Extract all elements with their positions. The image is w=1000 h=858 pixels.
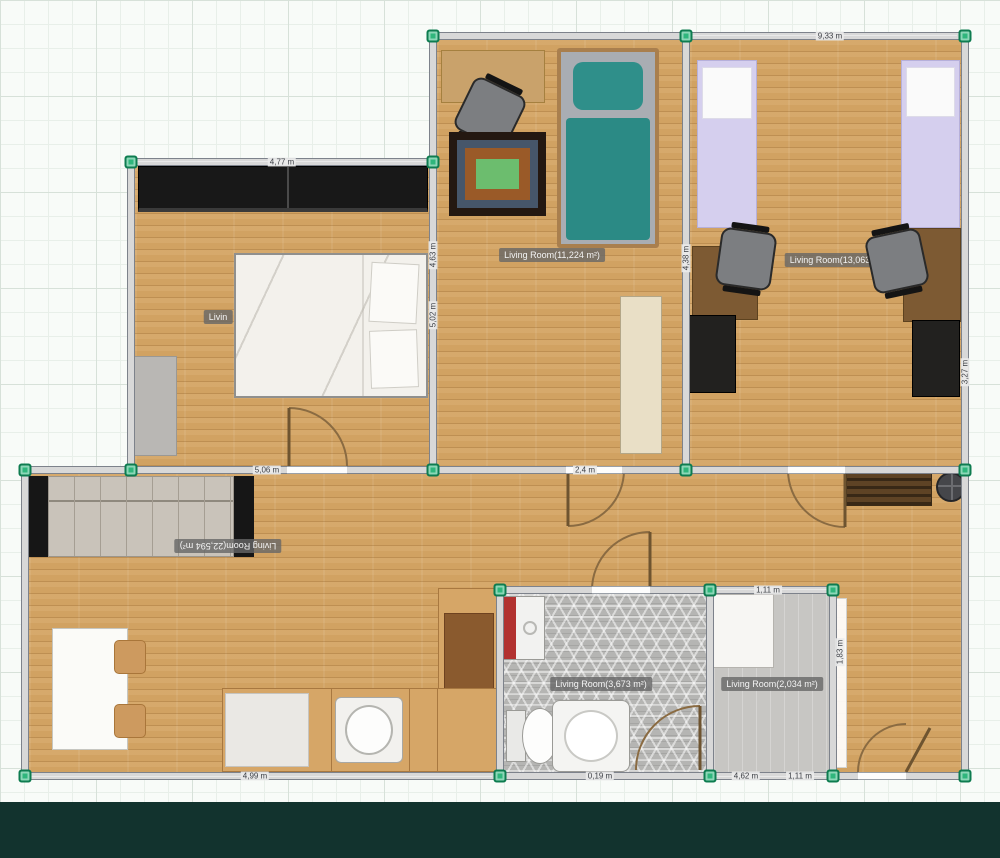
dimension-label: 0,19 m (586, 772, 614, 781)
dining-chair[interactable] (114, 640, 146, 674)
dimension-label: 9,33 m (816, 32, 844, 41)
dining-chair[interactable] (114, 704, 146, 738)
kitchen-sink (335, 697, 403, 763)
wall-handle[interactable] (827, 584, 840, 597)
mat-lavender-left[interactable] (697, 60, 757, 228)
wall-handle[interactable] (827, 770, 840, 783)
dimension-label: 4,63 m (429, 241, 438, 269)
wall-handle[interactable] (680, 464, 693, 477)
mat-lavender-right[interactable] (901, 60, 960, 228)
sink-basin (564, 710, 618, 762)
dimension-label: 4,62 m (732, 772, 760, 781)
dimension-label: 1,83 m (836, 638, 845, 666)
dimension-label: 1,11 m (786, 772, 814, 781)
wall-handle[interactable] (427, 30, 440, 43)
pillow (906, 67, 955, 117)
wall-handle[interactable] (427, 464, 440, 477)
wall-bathroom-left[interactable] (496, 586, 504, 780)
bathroom-sink[interactable] (552, 700, 630, 772)
wall-outer-right[interactable] (961, 32, 969, 780)
wall-handle[interactable] (19, 464, 32, 477)
wall-bathroom-top[interactable] (496, 586, 837, 594)
dimension-label: 4,99 m (241, 772, 269, 781)
wall-handle[interactable] (125, 464, 138, 477)
door-opening-bathroom[interactable] (592, 586, 650, 594)
washer-panel (504, 597, 516, 659)
wall-handle[interactable] (959, 30, 972, 43)
dimension-label: 4,77 m (268, 158, 296, 167)
mat-white[interactable] (712, 594, 774, 668)
wall-handle[interactable] (680, 30, 693, 43)
wall-handle[interactable] (427, 156, 440, 169)
wall-bedroom-left[interactable] (127, 158, 135, 474)
dimension-label: 3,27 m (961, 358, 970, 386)
kitchen-cabinet-white (225, 693, 309, 767)
bottom-toolbar (0, 802, 1000, 858)
door-opening-bedroom[interactable] (287, 466, 347, 474)
wall-handle[interactable] (494, 584, 507, 597)
wall-handle[interactable] (704, 770, 717, 783)
dimension-label: 2,4 m (573, 466, 597, 475)
wall-handle[interactable] (494, 770, 507, 783)
sink-basin (345, 705, 393, 755)
washing-machine[interactable] (503, 596, 545, 660)
office-chair[interactable] (714, 226, 778, 291)
door-opening-exterior[interactable] (858, 772, 906, 780)
cabinet-dark-right[interactable] (912, 320, 960, 397)
wall-handle[interactable] (19, 770, 32, 783)
wall-top[interactable] (429, 32, 969, 40)
wall-outer-left[interactable] (21, 466, 29, 780)
kitchen-counter-bottom[interactable] (222, 688, 500, 772)
wardrobe[interactable] (138, 166, 428, 212)
dimension-label: 5,02 m (429, 301, 438, 329)
area-rug[interactable] (449, 132, 546, 216)
pillow (369, 329, 419, 389)
dimension-label: 1,11 m (754, 586, 782, 595)
sofa-armrest (28, 476, 48, 557)
pillow (702, 67, 752, 119)
cabinet-dark-left[interactable] (688, 315, 736, 393)
double-bed[interactable] (234, 253, 428, 398)
blanket (566, 118, 650, 240)
room-label-living-mid: Living Room(11,224 m²) (499, 248, 605, 262)
dimension-label: 4,38 m (682, 244, 691, 272)
office-chair[interactable] (864, 227, 931, 295)
wall-small-room-right[interactable] (829, 586, 837, 780)
bench[interactable] (846, 472, 932, 506)
floorplan-canvas[interactable]: Livin Living Room(13,063 m²) (0, 0, 1000, 858)
washer-door (523, 621, 537, 635)
room-label-living-main: Living Room(22,594 m²) (175, 539, 282, 553)
single-bed-teal[interactable] (557, 48, 659, 248)
wall-handle[interactable] (959, 464, 972, 477)
rug-runner[interactable] (133, 356, 177, 456)
room-label-bathroom: Living Room(3,673 m²) (550, 677, 652, 691)
kitchen-cabinet-dark (444, 613, 494, 695)
room-label-small-room: Living Room(2,034 m²) (721, 677, 823, 691)
dimension-label: 5,06 m (253, 466, 281, 475)
room-label-bedroom: Livin (204, 310, 233, 324)
wall-handle[interactable] (704, 584, 717, 597)
wall-handle[interactable] (959, 770, 972, 783)
wall-handle[interactable] (125, 156, 138, 169)
wall-bathroom-right[interactable] (706, 586, 714, 780)
pillow (368, 262, 419, 324)
door-opening-right[interactable] (788, 466, 845, 474)
pillow (573, 62, 643, 110)
tall-cabinet[interactable] (620, 296, 662, 454)
